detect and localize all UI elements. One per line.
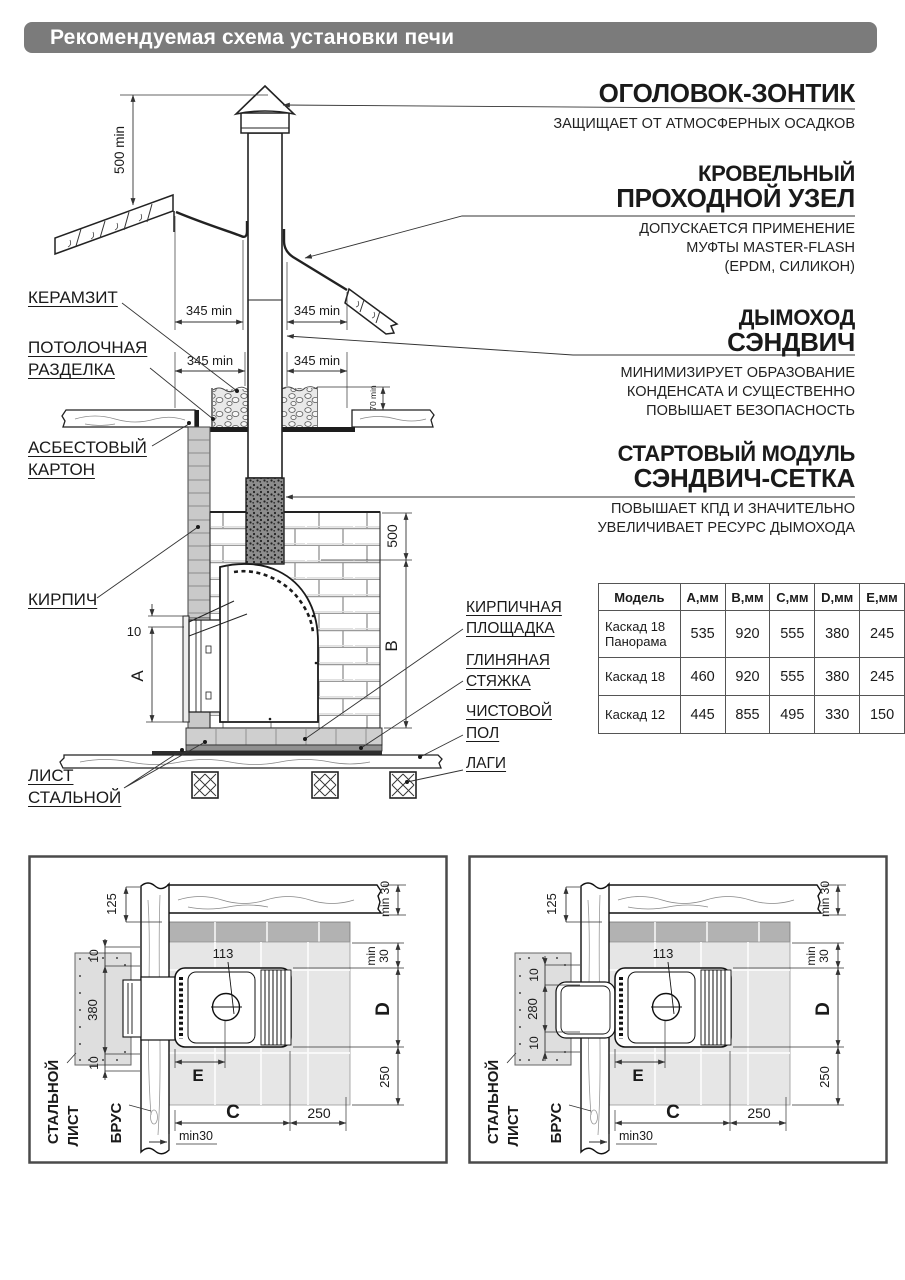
col-header-model: Модель xyxy=(599,584,681,611)
chimney-pipe xyxy=(246,133,284,564)
annotation-start-module: СТАРТОВЫЙ МОДУЛЬ СЭНДВИЧ-СЕТКА ПОВЫШАЕТ … xyxy=(597,442,855,538)
desc-line: МУФТЫ MASTER-FLASH xyxy=(616,239,855,258)
annotation-desc: МИНИМИЗИРУЕТ ОБРАЗОВАНИЕ КОНДЕНСАТА И СУ… xyxy=(621,364,856,421)
table-row: Каскад 12 445 855 495 330 150 xyxy=(599,696,905,734)
cell-model: Каскад 18 xyxy=(599,658,681,696)
annotation-title: СЭНДВИЧ-СЕТКА xyxy=(597,465,855,492)
dim-345min-roof-right: 345 min xyxy=(294,303,340,318)
desc-line: ДОПУСКАЕТСЯ ПРИМЕНЕНИЕ xyxy=(616,220,855,239)
annotation-title: КРОВЕЛЬНЫЙ xyxy=(616,162,855,185)
dim-500min: 500 min xyxy=(112,126,127,174)
desc-line: (EPDM, СИЛИКОН) xyxy=(616,258,855,277)
col-header-e: Е,мм xyxy=(860,584,905,611)
dim-D: D xyxy=(373,1002,394,1016)
dim-250-bottom: 250 xyxy=(747,1105,771,1121)
dim-min: min xyxy=(804,946,818,965)
stove-top-view xyxy=(175,962,291,1047)
label-ceiling-cutout-1: ПОТОЛОЧНАЯ xyxy=(28,338,147,358)
stove-top-view xyxy=(615,962,731,1047)
desc-line: МИНИМИЗИРУЕТ ОБРАЗОВАНИЕ xyxy=(621,364,856,383)
umbrella-icon xyxy=(236,86,294,114)
cell-value: 460 xyxy=(680,658,725,696)
dim-B: B xyxy=(382,640,401,651)
dim-10-bottom: 10 xyxy=(87,1056,101,1070)
cell-value: 555 xyxy=(770,611,815,658)
annotation-title: ПРОХОДНОЙ УЗЕЛ xyxy=(616,185,855,212)
roof-flashing-right xyxy=(284,229,347,290)
chimney-cap xyxy=(236,86,294,133)
roof-left xyxy=(55,195,174,254)
annotation-title: СТАРТОВЫЙ МОДУЛЬ xyxy=(597,442,855,465)
dim-345min-ceiling-right: 345 min xyxy=(294,353,340,368)
joist xyxy=(312,772,338,798)
dim-min30-top: min 30 xyxy=(818,881,832,917)
col-header-b: В,мм xyxy=(725,584,770,611)
detail-box-right: 125 min 30 10 280 10 min 30 D 250 113 E … xyxy=(470,857,887,1163)
label-ceiling-cutout-2: РАЗДЕЛКА xyxy=(28,360,115,380)
cell-value: 380 xyxy=(815,611,860,658)
label-steel-sheet-1: ЛИСТ xyxy=(28,766,73,786)
dim-C: C xyxy=(226,1102,240,1123)
ceiling-left-plank xyxy=(62,410,195,427)
label-asbestos-2: КАРТОН xyxy=(28,460,95,480)
cell-value: 920 xyxy=(725,658,770,696)
joist xyxy=(390,772,416,798)
page: 500 min 345 min 345 min 345 min 345 min … xyxy=(0,0,905,1280)
annotation-title: ОГОЛОВОК-ЗОНТИК xyxy=(553,80,855,107)
brick-platform xyxy=(186,728,382,745)
cell-value: 445 xyxy=(680,696,725,734)
desc-line: КОНДЕНСАТА И СУЩЕСТВЕННО xyxy=(621,383,856,402)
label-steel-sheet-2: СТАЛЬНОЙ xyxy=(28,788,121,808)
firebox-tunnel xyxy=(141,977,175,1040)
table-row: Каскад 18 Панорама 535 920 555 380 245 xyxy=(599,611,905,658)
dim-E: E xyxy=(632,1066,643,1085)
clay-screed xyxy=(186,745,382,751)
dim-min30-bottom: min30 xyxy=(619,1129,653,1143)
annotation-roof-unit: КРОВЕЛЬНЫЙ ПРОХОДНОЙ УЗЕЛ ДОПУСКАЕТСЯ ПР… xyxy=(616,162,855,277)
desc-line: ПОВЫШАЕТ БЕЗОПАСНОСТЬ xyxy=(621,402,856,421)
dim-10-top: 10 xyxy=(527,968,541,982)
desc-line: ЗАЩИЩАЕТ ОТ АТМОСФЕРНЫХ ОСАДКОВ xyxy=(553,115,855,134)
label-beam: БРУС xyxy=(108,1102,125,1143)
wall-tile-row xyxy=(163,922,350,942)
label-joists: ЛАГИ xyxy=(466,755,506,773)
annotation-sandwich-chimney: ДЫМОХОД СЭНДВИЧ МИНИМИЗИРУЕТ ОБРАЗОВАНИЕ… xyxy=(621,306,856,421)
dim-min30-top: min 30 xyxy=(378,881,392,917)
keramzit-fill-right xyxy=(282,388,317,427)
cell-value: 535 xyxy=(680,611,725,658)
dim-10-bottom: 10 xyxy=(527,1036,541,1050)
detail-box-left: 125 min 30 10 380 10 min 30 D 250 113 E … xyxy=(30,857,447,1163)
label-brick: КИРПИЧ xyxy=(28,590,97,610)
label-beam: БРУС xyxy=(548,1102,565,1143)
dim-C: C xyxy=(666,1102,680,1123)
col-header-a: А,мм xyxy=(680,584,725,611)
label-asbestos-1: АСБЕСТОВЫЙ xyxy=(28,438,147,458)
dim-250-bottom: 250 xyxy=(307,1105,331,1121)
dim-A: A xyxy=(128,670,147,682)
dim-250-side: 250 xyxy=(377,1066,392,1088)
dim-500: 500 xyxy=(384,524,400,548)
label-steel-sheet-2: ЛИСТ xyxy=(65,1106,82,1147)
label-clay-screed-1: ГЛИНЯНАЯ xyxy=(466,652,550,670)
dim-depth: 380 xyxy=(85,999,100,1021)
dim-125: 125 xyxy=(104,893,119,915)
keramzit-fill-left xyxy=(213,389,248,427)
dim-min: min xyxy=(364,946,378,965)
dim-113: 113 xyxy=(653,946,674,961)
dim-10-top: 10 xyxy=(87,949,101,963)
cell-value: 150 xyxy=(860,696,905,734)
page-title: Рекомендуемая схема установки печи xyxy=(24,22,877,53)
cell-value: 920 xyxy=(725,611,770,658)
cell-value: 330 xyxy=(815,696,860,734)
roof-right xyxy=(345,289,397,334)
annotation-desc: ПОВЫШАЕТ КПД И ЗНАЧИТЕЛЬНО УВЕЛИЧИВАЕТ Р… xyxy=(597,500,855,538)
wall-tile-row xyxy=(603,922,790,942)
finish-floor xyxy=(60,755,442,768)
desc-line: ПОВЫШАЕТ КПД И ЗНАЧИТЕЛЬНО xyxy=(597,500,855,519)
annotation-title: СЭНДВИЧ xyxy=(621,329,856,356)
table-row: Каскад 18 460 920 555 380 245 xyxy=(599,658,905,696)
label-steel-sheet-1: СТАЛЬНОЙ xyxy=(44,1060,62,1144)
label-finish-floor-2: ПОЛ xyxy=(466,725,499,743)
stove-front-plate xyxy=(183,616,189,722)
joist xyxy=(192,772,218,798)
col-header-c: С,мм xyxy=(770,584,815,611)
label-steel-sheet-1: СТАЛЬНОЙ xyxy=(484,1060,502,1144)
annotation-cap: ОГОЛОВОК-ЗОНТИК ЗАЩИЩАЕТ ОТ АТМОСФЕРНЫХ … xyxy=(553,80,855,134)
dim-D: D xyxy=(813,1002,834,1016)
dim-E: E xyxy=(192,1066,203,1085)
annotation-desc: ДОПУСКАЕТСЯ ПРИМЕНЕНИЕ МУФТЫ MASTER-FLAS… xyxy=(616,220,855,277)
desc-line: УВЕЛИЧИВАЕТ РЕСУРС ДЫМОХОДА xyxy=(597,519,855,538)
label-clay-screed-2: СТЯЖКА xyxy=(466,673,531,691)
dim-113: 113 xyxy=(213,946,234,961)
dim-10: 10 xyxy=(127,624,141,639)
cell-value: 245 xyxy=(860,611,905,658)
model-dimensions-table: Модель А,мм В,мм С,мм D,мм Е,мм Каскад 1… xyxy=(598,583,905,734)
label-finish-floor-1: ЧИСТОВОЙ xyxy=(466,703,552,721)
dim-30: 30 xyxy=(817,949,831,963)
label-brick-platform-2: ПЛОЩАДКА xyxy=(466,620,555,638)
annotation-desc: ЗАЩИЩАЕТ ОТ АТМОСФЕРНЫХ ОСАДКОВ xyxy=(553,115,855,134)
sandwich-mesh-module xyxy=(246,478,284,564)
dim-125: 125 xyxy=(544,893,559,915)
dim-30: 30 xyxy=(377,949,391,963)
label-keramzit: КЕРАМЗИТ xyxy=(28,288,118,308)
col-header-d: D,мм xyxy=(815,584,860,611)
roof-flashing-left xyxy=(176,212,247,237)
cell-model: Каскад 12 xyxy=(599,696,681,734)
dim-345min-ceiling-left: 345 min xyxy=(187,353,233,368)
cell-value: 380 xyxy=(815,658,860,696)
label-brick-platform-1: КИРПИЧНАЯ xyxy=(466,599,562,617)
dim-depth: 280 xyxy=(525,998,540,1020)
dim-min30-bottom: min30 xyxy=(179,1129,213,1143)
dim-345min-roof-left: 345 min xyxy=(186,303,232,318)
dim-70min: 70 min xyxy=(368,385,378,411)
dim-250-side: 250 xyxy=(817,1066,832,1088)
firebox-tunnel xyxy=(556,982,615,1038)
label-steel-sheet-2: ЛИСТ xyxy=(505,1106,522,1147)
cell-value: 555 xyxy=(770,658,815,696)
ceiling-right-plank xyxy=(352,410,434,427)
annotation-title: ДЫМОХОД xyxy=(621,306,856,329)
cell-value: 245 xyxy=(860,658,905,696)
cell-value: 495 xyxy=(770,696,815,734)
cell-value: 855 xyxy=(725,696,770,734)
cell-model: Каскад 18 Панорама xyxy=(599,611,681,658)
table-header-row: Модель А,мм В,мм С,мм D,мм Е,мм xyxy=(599,584,905,611)
